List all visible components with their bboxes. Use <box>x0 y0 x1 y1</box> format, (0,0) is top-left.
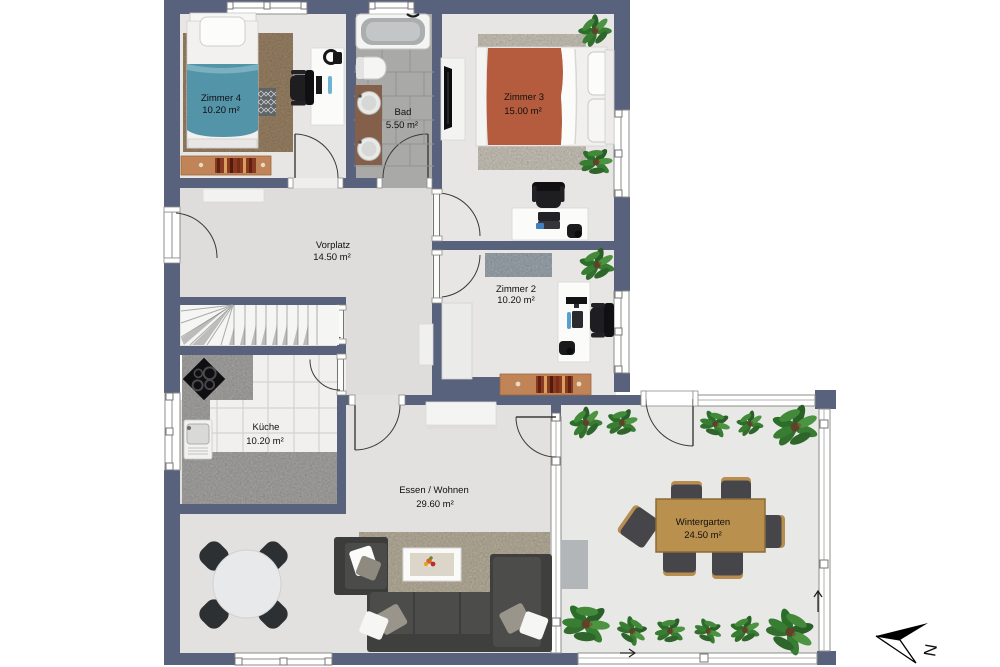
svg-text:Vorplatz: Vorplatz <box>316 240 351 251</box>
svg-text:24.50 m²: 24.50 m² <box>684 530 722 541</box>
svg-text:Bad: Bad <box>395 107 412 118</box>
svg-text:Wintergarten: Wintergarten <box>676 517 730 528</box>
svg-text:10.20 m²: 10.20 m² <box>202 105 240 116</box>
svg-text:Zimmer 4: Zimmer 4 <box>201 93 241 104</box>
svg-text:14.50 m²: 14.50 m² <box>313 252 351 263</box>
svg-text:10.20 m²: 10.20 m² <box>246 436 284 447</box>
svg-text:15.00 m²: 15.00 m² <box>504 106 542 117</box>
svg-text:10.20 m²: 10.20 m² <box>497 295 535 306</box>
svg-text:Essen / Wohnen: Essen / Wohnen <box>399 485 469 496</box>
svg-text:Küche: Küche <box>253 422 280 433</box>
svg-text:29.60 m²: 29.60 m² <box>416 499 454 510</box>
svg-text:Zimmer 3: Zimmer 3 <box>504 92 544 103</box>
svg-text:5.50 m²: 5.50 m² <box>386 120 418 131</box>
svg-text:Zimmer 2: Zimmer 2 <box>496 284 536 295</box>
